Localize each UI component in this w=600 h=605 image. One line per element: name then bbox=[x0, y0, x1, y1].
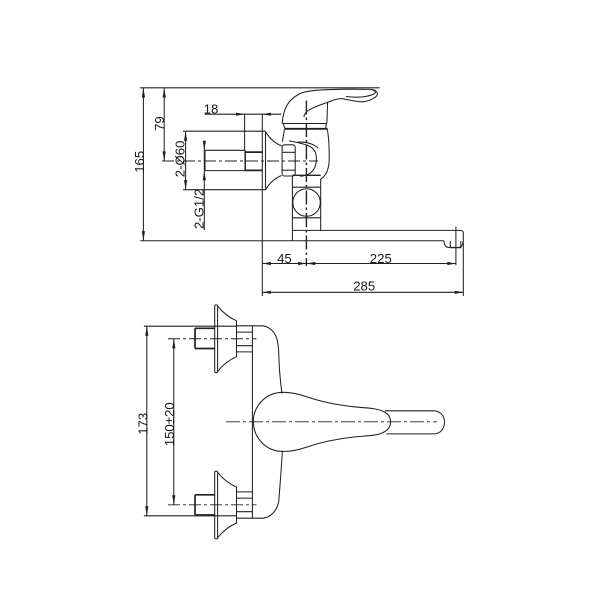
svg-text:173: 173 bbox=[135, 413, 150, 435]
svg-text:285: 285 bbox=[353, 279, 375, 294]
svg-text:150±20: 150±20 bbox=[162, 402, 177, 446]
svg-text:165: 165 bbox=[132, 151, 147, 173]
svg-text:18: 18 bbox=[204, 102, 219, 117]
svg-text:225: 225 bbox=[370, 251, 392, 266]
svg-text:2-G1/2: 2-G1/2 bbox=[191, 189, 206, 229]
svg-text:2-Ø60: 2-Ø60 bbox=[172, 141, 187, 178]
svg-text:45: 45 bbox=[277, 251, 292, 266]
svg-text:79: 79 bbox=[152, 116, 167, 131]
